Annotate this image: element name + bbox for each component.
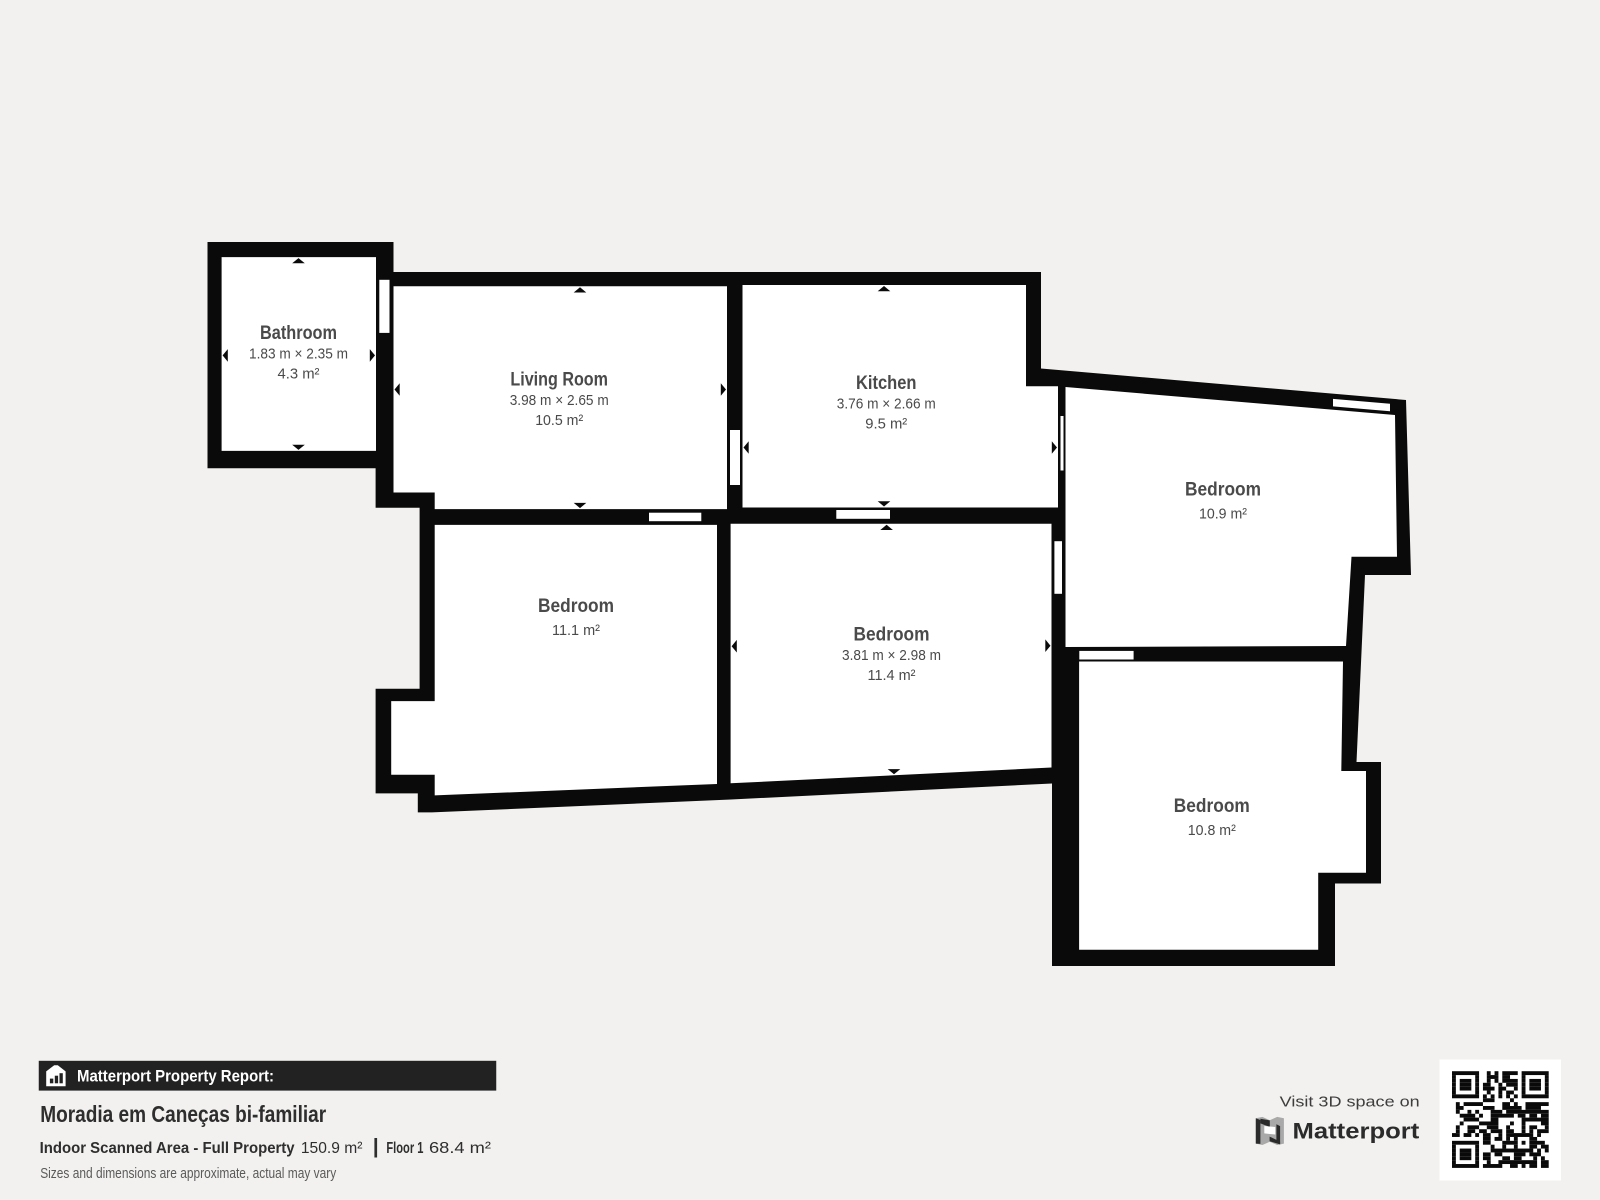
svg-text:1.83 m × 2.35 m: 1.83 m × 2.35 m (249, 346, 348, 363)
svg-text:4.3 m²: 4.3 m² (278, 366, 320, 383)
svg-text:68.4 m²: 68.4 m² (429, 1140, 492, 1157)
svg-text:Matterport Property Report:: Matterport Property Report: (77, 1067, 274, 1086)
svg-text:Bedroom: Bedroom (1174, 796, 1250, 817)
svg-text:Bedroom: Bedroom (1185, 480, 1261, 501)
svg-text:Floor 1: Floor 1 (386, 1140, 423, 1157)
svg-text:Bathroom: Bathroom (260, 323, 337, 344)
svg-text:3.98 m × 2.65 m: 3.98 m × 2.65 m (510, 392, 609, 409)
svg-text:Matterport: Matterport (1293, 1118, 1421, 1143)
svg-text:150.9 m²: 150.9 m² (301, 1140, 363, 1157)
svg-text:10.8 m²: 10.8 m² (1188, 822, 1236, 839)
svg-text:3.81 m × 2.98 m: 3.81 m × 2.98 m (842, 647, 941, 664)
svg-text:Moradia em Caneças bi-familiar: Moradia em Caneças bi-familiar (40, 1101, 326, 1127)
svg-text:Visit 3D space on: Visit 3D space on (1280, 1094, 1420, 1111)
svg-text:Kitchen: Kitchen (856, 373, 917, 394)
svg-text:Living Room: Living Room (510, 370, 608, 391)
svg-text:3.76 m × 2.66 m: 3.76 m × 2.66 m (837, 396, 936, 413)
svg-text:Bedroom: Bedroom (538, 596, 614, 617)
svg-text:Sizes and dimensions are appro: Sizes and dimensions are approximate, ac… (40, 1165, 336, 1182)
svg-text:10.5 m²: 10.5 m² (535, 412, 583, 429)
svg-text:9.5 m²: 9.5 m² (865, 416, 907, 433)
svg-text:Bedroom: Bedroom (854, 625, 930, 646)
svg-text:10.9 m²: 10.9 m² (1199, 506, 1247, 523)
svg-text:11.4 m²: 11.4 m² (868, 667, 916, 684)
svg-text:Indoor Scanned Area - Full Pro: Indoor Scanned Area - Full Property (40, 1140, 295, 1157)
svg-text:11.1 m²: 11.1 m² (552, 622, 600, 639)
